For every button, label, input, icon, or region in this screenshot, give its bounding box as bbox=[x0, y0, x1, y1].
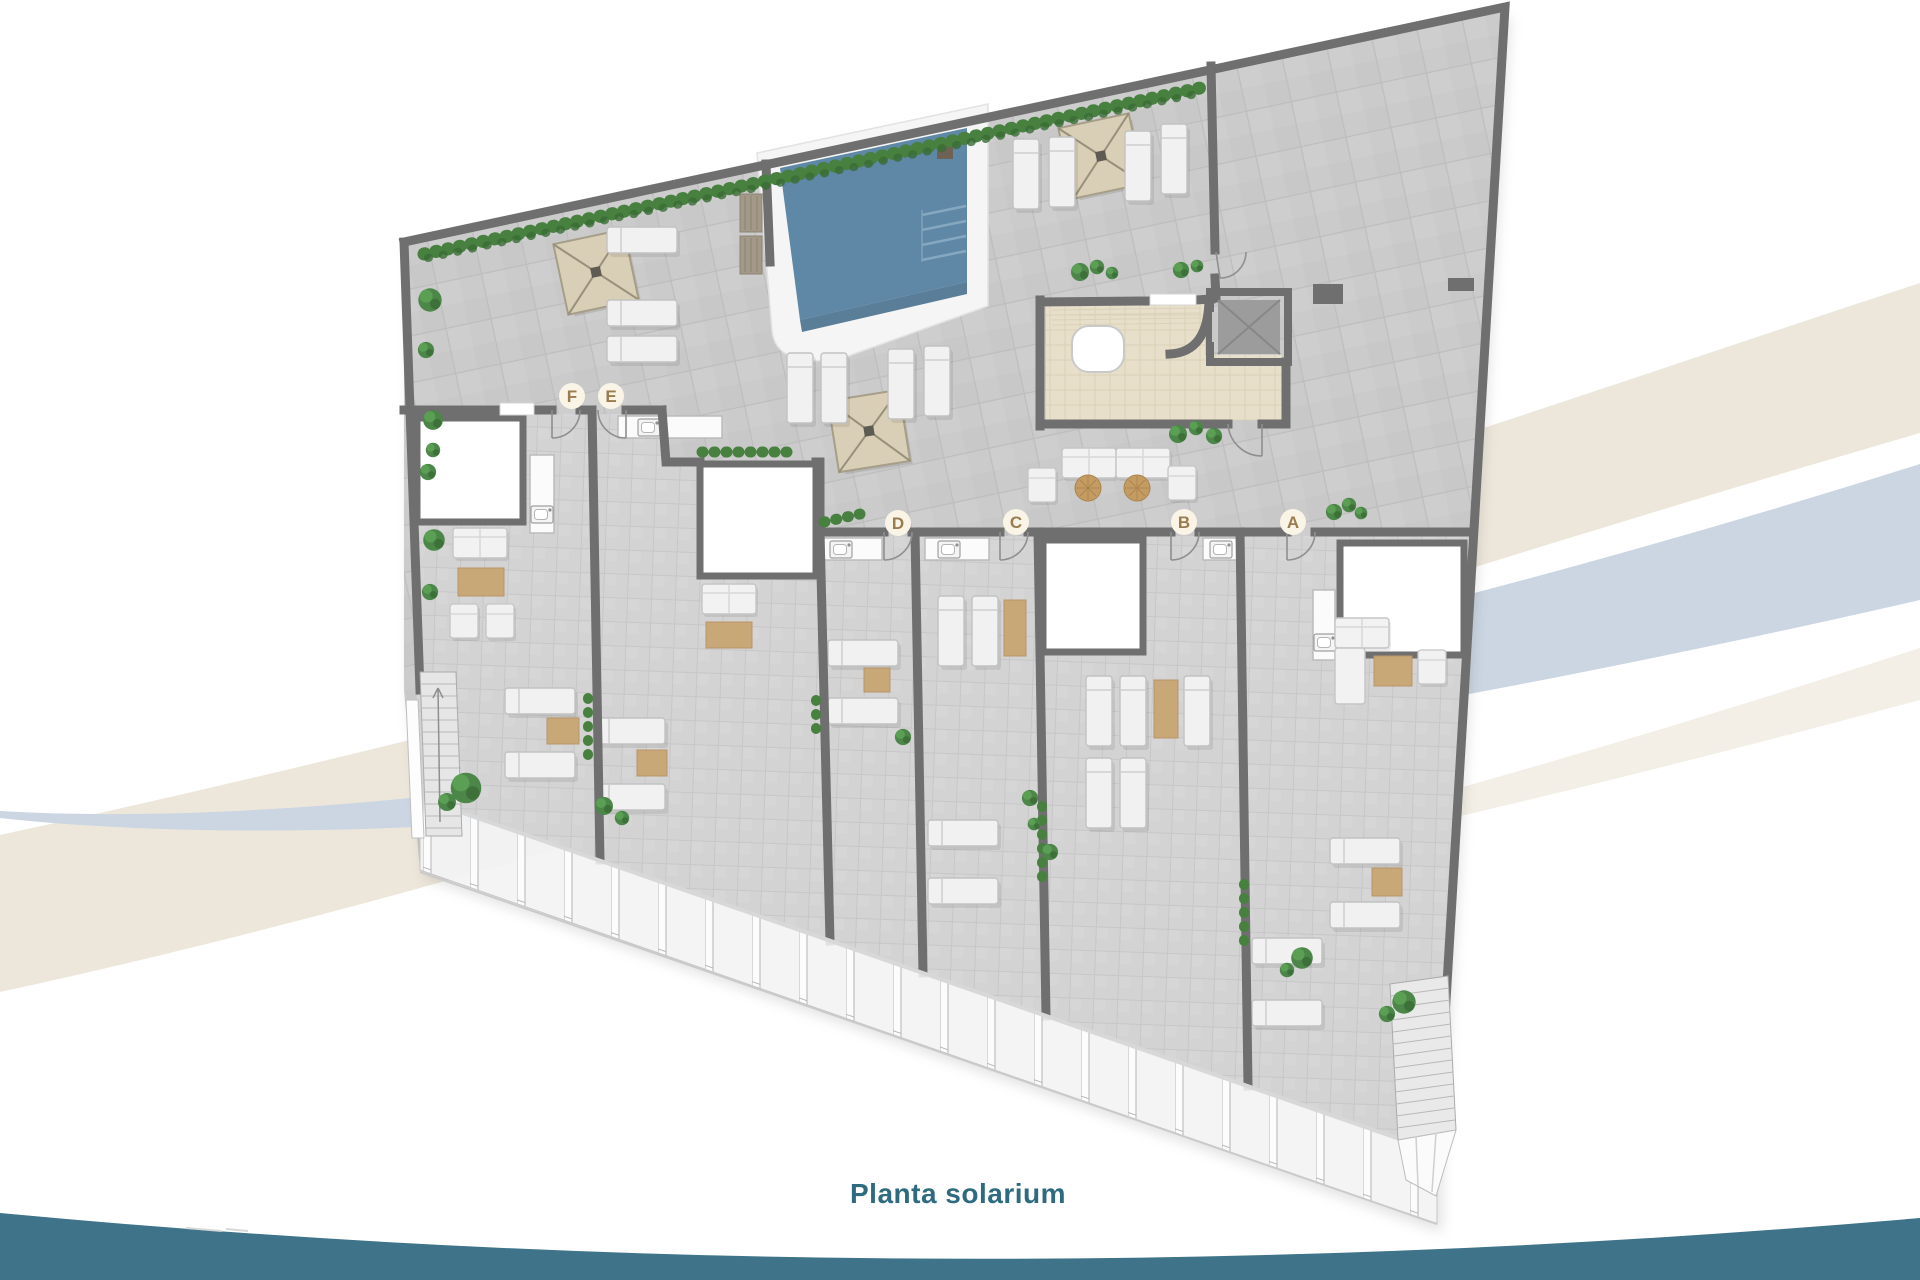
wall-stub-right bbox=[1448, 278, 1474, 291]
wall-stub-core bbox=[1313, 284, 1343, 304]
solarium-plan-page: F E D C B A Planta solar bbox=[0, 0, 1920, 1280]
unit-badge-b-letter: B bbox=[1178, 513, 1190, 532]
unit-badge-e-letter: E bbox=[605, 387, 616, 406]
unit-badge-c-letter: C bbox=[1010, 513, 1022, 532]
unit-badge-e: E bbox=[598, 383, 624, 409]
unit-badge-a: A bbox=[1280, 509, 1306, 535]
unit-badge-d: D bbox=[885, 510, 911, 536]
unit-badge-d-letter: D bbox=[892, 514, 904, 533]
unit-badge-f: F bbox=[559, 383, 585, 409]
window bbox=[500, 403, 534, 415]
solarium-floor-plan-figure: F E D C B A Planta solar bbox=[0, 0, 1920, 1280]
bar-counter bbox=[1072, 326, 1124, 372]
window bbox=[1150, 294, 1196, 305]
unit-badge-b: B bbox=[1171, 509, 1197, 535]
unit-badge-c: C bbox=[1003, 509, 1029, 535]
unit-badge-f-letter: F bbox=[567, 387, 577, 406]
page-title: Planta solarium bbox=[850, 1178, 1066, 1209]
elevator bbox=[1210, 292, 1288, 362]
unit-badge-a-letter: A bbox=[1287, 513, 1299, 532]
